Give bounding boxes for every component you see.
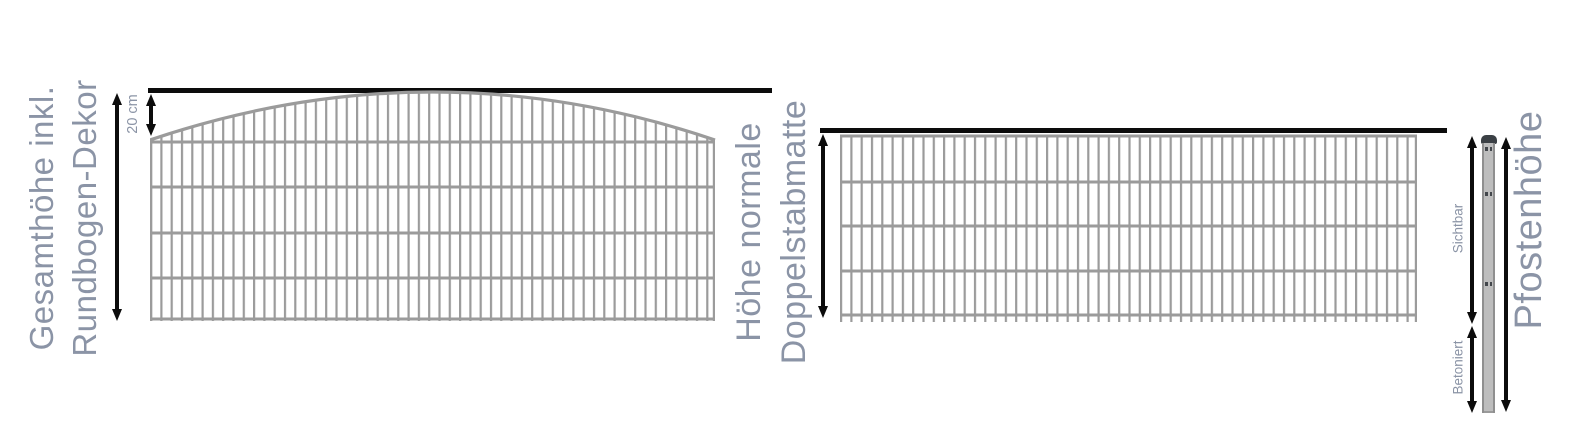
arrow-shaft bbox=[1470, 332, 1473, 407]
post-body bbox=[1482, 143, 1495, 413]
fence-diagram: Gesamthöhe inkl. Rundbogen-Dekor 20 cm bbox=[0, 0, 1587, 425]
arrow-shaft bbox=[821, 140, 824, 312]
arch-height-label: 20 cm bbox=[126, 87, 142, 141]
panel-edge-bar-right bbox=[713, 140, 715, 321]
arrow-shaft bbox=[115, 99, 118, 315]
visible-section-label-text: Sichtbar bbox=[1451, 197, 1466, 261]
total-height-label: Gesamthöhe inkl. Rundbogen-Dekor bbox=[20, 73, 106, 363]
mat-height-arrow bbox=[817, 134, 829, 318]
arrow-shaft bbox=[1470, 142, 1473, 318]
concreted-section-arrow bbox=[1466, 326, 1478, 413]
post-height-label-text: Pfostenhöhe bbox=[1506, 110, 1552, 330]
visible-section-label: Sichtbar bbox=[1451, 197, 1466, 261]
total-height-label-line1: Gesamthöhe inkl. bbox=[20, 73, 63, 363]
total-height-label-line2: Rundbogen-Dekor bbox=[63, 73, 106, 363]
panel-edge-bar-right bbox=[1415, 135, 1417, 322]
fence-post bbox=[1482, 135, 1495, 413]
post-hole bbox=[1484, 282, 1493, 286]
flat-fence-panel bbox=[840, 130, 1418, 324]
mat-height-label: Höhe normale Doppelstabmatte bbox=[727, 92, 817, 372]
total-height-arrow bbox=[111, 93, 123, 321]
flat-mesh-bars bbox=[840, 135, 1417, 322]
arch-height-label-text: 20 cm bbox=[126, 87, 141, 141]
mat-height-label-line1: Höhe normale bbox=[727, 92, 772, 372]
arched-mesh-bars bbox=[150, 92, 715, 321]
post-height-label: Pfostenhöhe bbox=[1506, 110, 1554, 330]
post-hole bbox=[1484, 192, 1493, 196]
post-hole bbox=[1484, 147, 1493, 151]
mat-height-label-line2: Doppelstabmatte bbox=[772, 92, 817, 372]
arched-fence-panel bbox=[150, 88, 719, 321]
concreted-section-label: Betoniert bbox=[1451, 331, 1466, 405]
concreted-section-label-text: Betoniert bbox=[1451, 331, 1466, 405]
panel-edge-bar-left bbox=[150, 140, 152, 321]
visible-section-arrow bbox=[1466, 136, 1478, 324]
